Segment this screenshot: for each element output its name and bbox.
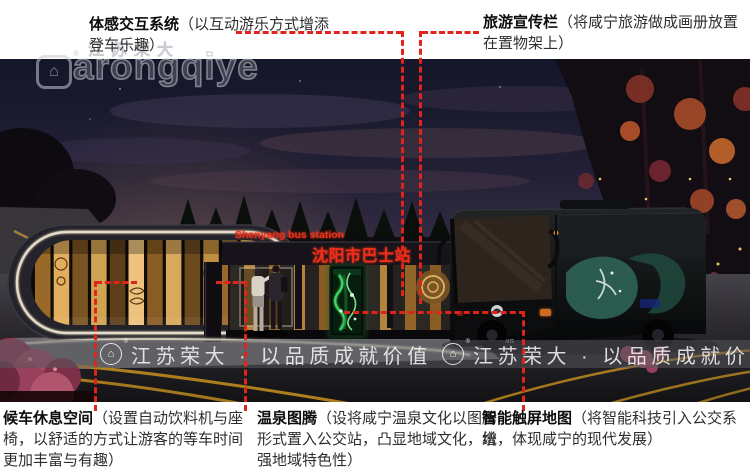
annotation-title: 温泉图腾 [257, 410, 317, 427]
side-windows [560, 213, 704, 257]
watermark-band-text: 江苏荣大 · 以品质成就价值 [473, 340, 750, 369]
annotation-bottom-left: 候车休息空间（设置自动饮料机与座椅，以舒适的方式让游客的等车时间更加丰富与有趣） [3, 408, 256, 471]
leader-top-left-v [401, 31, 404, 296]
watermark-band-right: ⌂® 江苏荣大 · 以品质成就价值 [442, 340, 750, 368]
leader-bottom-left-v [94, 281, 97, 411]
touchscreen-totem [328, 264, 366, 338]
tour-bus: KING LONG [439, 200, 718, 355]
bus-decal [566, 253, 685, 319]
annotation-title: 体感交互系统 [89, 16, 179, 33]
watermark-band-left: ⌂® 江苏荣大 · 以品质成就价值 [100, 340, 432, 368]
annotation-title: 智能触屏地图 [482, 410, 572, 427]
rongda-logo-icon: ⌂® [442, 343, 464, 365]
sign-english: Shenyang bus station [235, 229, 344, 241]
annotation-top-left: 体感交互系统（以互动游乐方式增添登车乐趣） [89, 14, 342, 56]
watermark-band-text: 江苏荣大 · 以品质成就价值 [131, 340, 432, 369]
rongda-logo-large: ⌂® [36, 55, 72, 89]
leader-top-right-v [419, 31, 422, 304]
fog-lamp [540, 309, 551, 316]
watermark-band: ⌂® 江苏荣大 · 以品质成就价值 ⌂® 江苏荣大 · 以品质成就价值 [0, 340, 750, 368]
annotation-bottom-right: 智能触屏地图（将智能科技引入公交系统，体现咸宁的现代发展） [482, 408, 746, 450]
roof-ac [560, 200, 630, 209]
annotation-top-right: 旅游宣传栏（将咸宁旅游做成画册放置在置物架上） [483, 12, 741, 54]
station-rendering-photo: Shenyang bus station 沈阳市巴士站 KING LONG [0, 59, 750, 402]
glass-door [240, 268, 292, 326]
column [204, 262, 221, 342]
annotation-title: 候车休息空间 [3, 410, 93, 427]
leader-bottom-center-v [244, 281, 247, 411]
leader-bottom-right-v [522, 311, 525, 411]
leader-bottom-center-h [216, 281, 247, 284]
leader-top-right-h [422, 31, 479, 34]
leader-bottom-right-h [344, 311, 525, 314]
annotation-title: 旅游宣传栏 [483, 14, 558, 31]
sign-chinese: 沈阳市巴士站 [312, 246, 411, 265]
presentation-slide: Shenyang bus station 沈阳市巴士站 KING LONG [0, 0, 750, 472]
rongda-logo-icon: ⌂® [100, 343, 122, 365]
annotation-bottom-center: 温泉图腾（设将咸宁温泉文化以图腾形式置入公交站，凸显地域文化，增强地域特色性） [257, 408, 509, 471]
leader-bottom-left-h [96, 281, 137, 284]
